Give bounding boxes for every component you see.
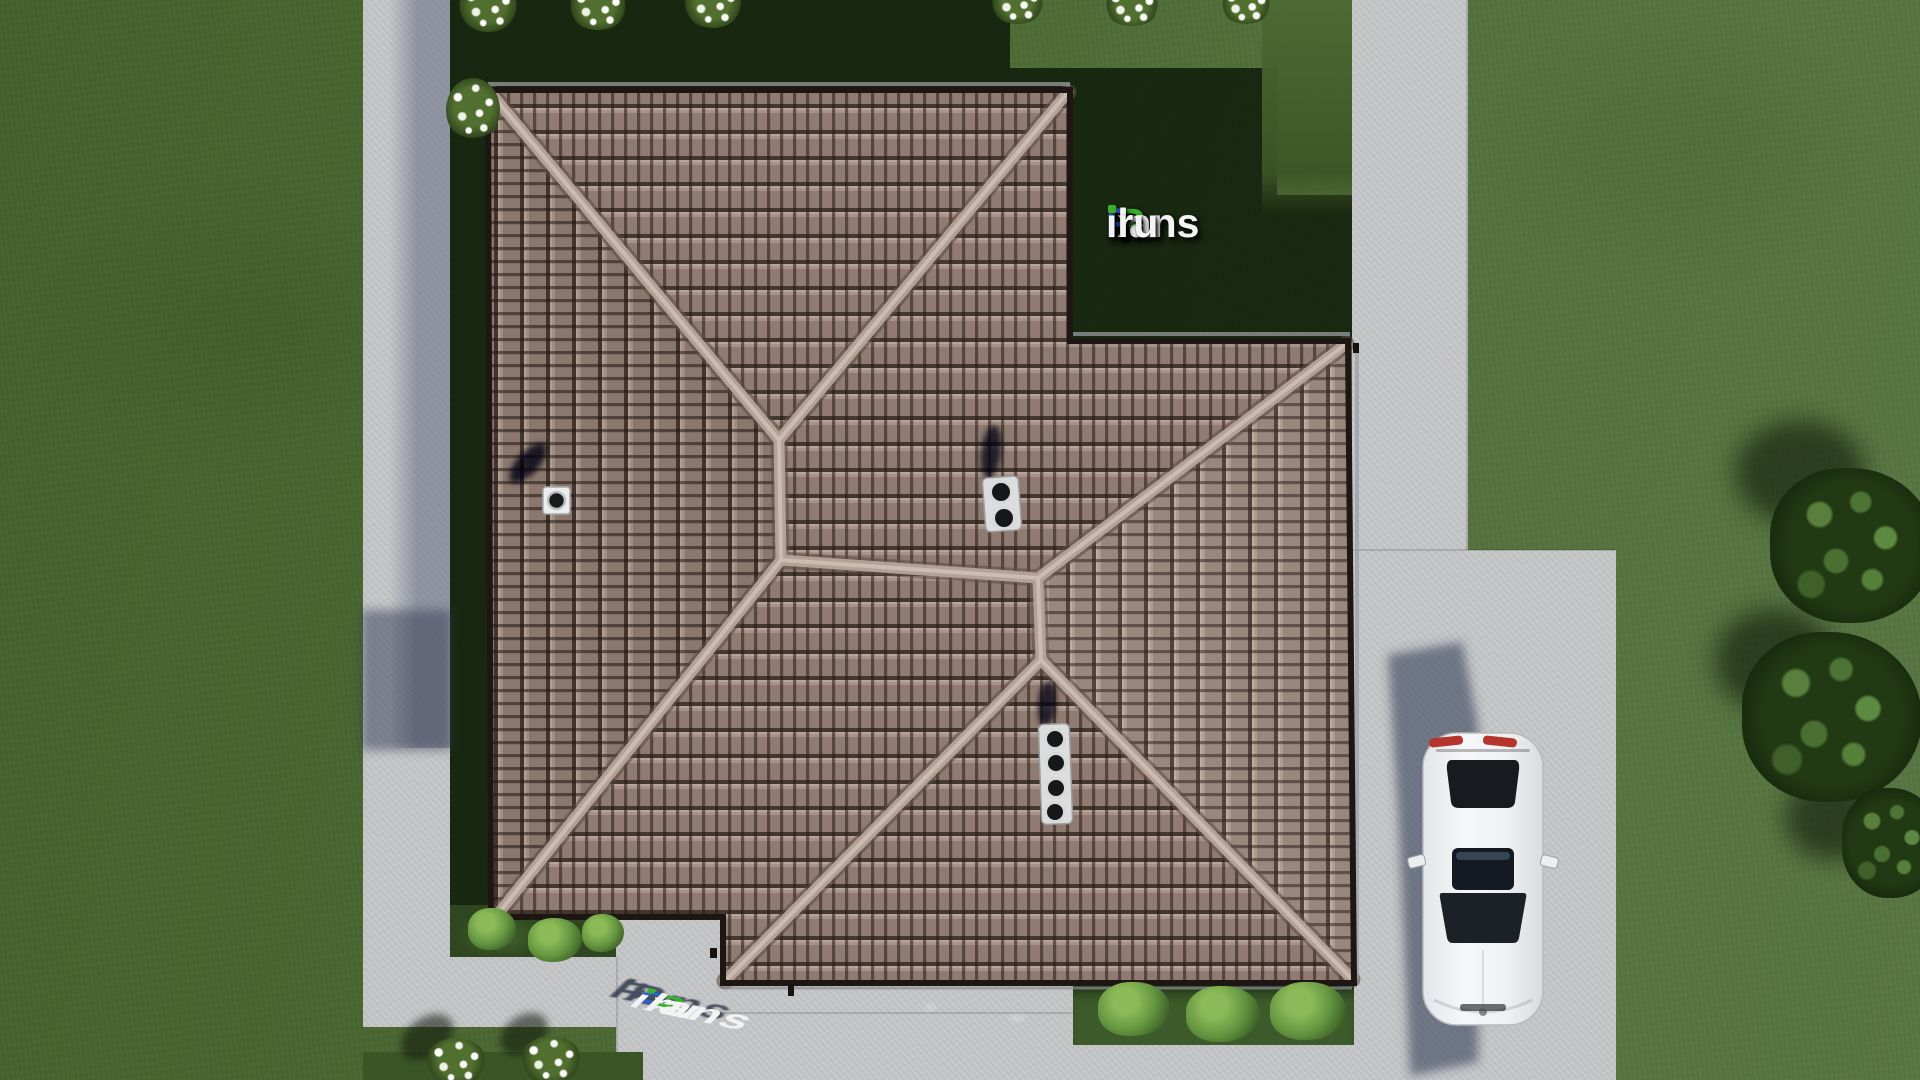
pipe-opening <box>1046 803 1065 822</box>
tree <box>1770 468 1920 623</box>
rear-window <box>1447 760 1519 808</box>
flower-shrub <box>520 1036 582 1080</box>
downspout <box>710 948 717 958</box>
aerial-render-scene: FixPlans.ru FixPlans.ru FixPlans.ru <box>0 0 1920 1080</box>
car <box>1388 642 1559 1076</box>
tree <box>1842 788 1920 898</box>
hip-roof <box>488 84 1359 996</box>
flower-shrub-roof-corner <box>446 78 500 142</box>
downspout <box>788 984 794 996</box>
logo-letter: ru <box>1117 200 1158 247</box>
trunk-seam <box>1436 749 1530 752</box>
downspout <box>1353 343 1359 353</box>
vent-opening <box>548 492 565 509</box>
pipe-opening <box>1047 754 1066 773</box>
pipe-opening <box>994 508 1015 529</box>
pipe-opening <box>1047 779 1066 798</box>
windshield <box>1440 893 1527 943</box>
pipe-opening <box>991 482 1012 503</box>
flower-shrub <box>425 1038 487 1080</box>
logo-letter: i <box>1106 200 1117 247</box>
pipe-opening <box>1046 730 1065 749</box>
fixplans-logo: FixPlans.ru <box>1106 200 1117 247</box>
house-and-car-render <box>0 0 1920 1080</box>
tree <box>1742 632 1920 802</box>
sunroof-reflection <box>1456 852 1510 860</box>
